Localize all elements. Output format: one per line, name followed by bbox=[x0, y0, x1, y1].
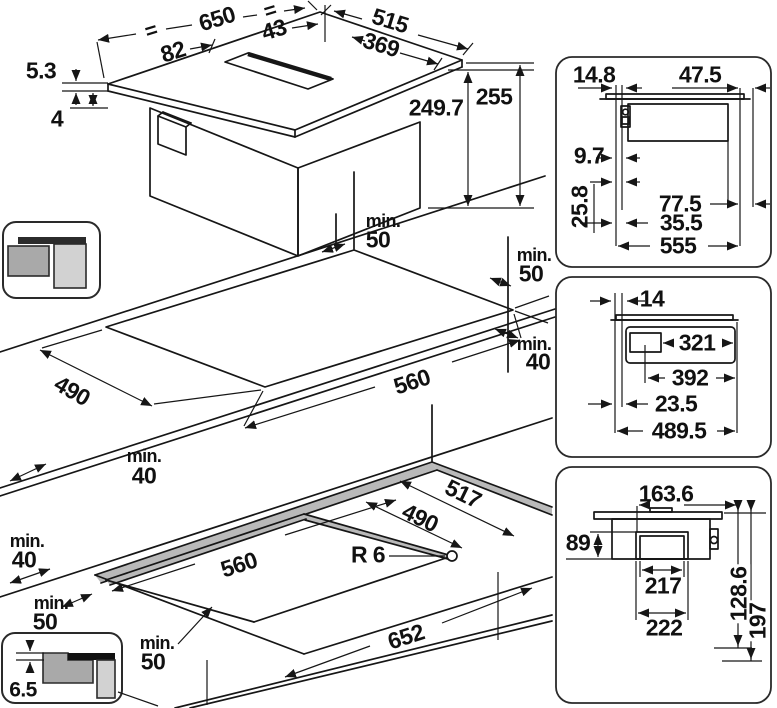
dim-bottom-217: 217 bbox=[645, 575, 682, 598]
dim-flush-back-clearance-40: 40 bbox=[12, 549, 36, 572]
dim-side-25.8: 25.8 bbox=[569, 186, 592, 228]
technical-drawing bbox=[0, 0, 777, 708]
hob-isometric-view bbox=[62, 1, 534, 256]
dim-front-489.5: 489.5 bbox=[652, 420, 707, 443]
dim-bottom-222: 222 bbox=[646, 617, 683, 640]
dim-side-555: 555 bbox=[660, 235, 697, 258]
dim-total-height: 255 bbox=[476, 86, 513, 109]
dim-left-clearance-40: 40 bbox=[132, 465, 156, 488]
dim-side-47.5: 47.5 bbox=[679, 64, 721, 87]
dim-back-right-clearance-50: 50 bbox=[519, 263, 543, 286]
dim-rebate-depth: 6.5 bbox=[9, 680, 36, 701]
dim-front-392: 392 bbox=[672, 367, 709, 390]
dim-flush-front-clearance-50: 50 bbox=[141, 651, 165, 674]
dim-back-clearance-50: 50 bbox=[366, 229, 390, 252]
dim-glass-thickness: 5.3 bbox=[26, 60, 56, 83]
dim-side-35.5: 35.5 bbox=[660, 212, 702, 235]
dim-glass-overhang: 4 bbox=[51, 108, 63, 131]
dim-body-height: 249.7 bbox=[409, 97, 464, 120]
dim-flush-mid-clearance-50: 50 bbox=[33, 611, 57, 634]
dim-bottom-197: 197 bbox=[747, 601, 770, 642]
dim-front-23.5: 23.5 bbox=[655, 393, 697, 416]
dim-side-9.7: 9.7 bbox=[574, 145, 604, 168]
surface-mount-icon bbox=[3, 222, 100, 298]
dim-side-14.8: 14.8 bbox=[573, 64, 615, 87]
corner-radius-marker bbox=[447, 551, 457, 561]
dim-bottom-89: 89 bbox=[566, 532, 590, 555]
dim-right-clearance-40: 40 bbox=[526, 351, 550, 374]
installation-diagram: = 650 = 43 515 369 82 5.3 4 249.7 255 mi… bbox=[0, 0, 777, 708]
dim-bottom-163.6: 163.6 bbox=[639, 483, 694, 506]
dim-front-321: 321 bbox=[679, 332, 716, 355]
dim-corner-radius: R 6 bbox=[351, 544, 385, 567]
dim-front-14: 14 bbox=[640, 288, 664, 311]
